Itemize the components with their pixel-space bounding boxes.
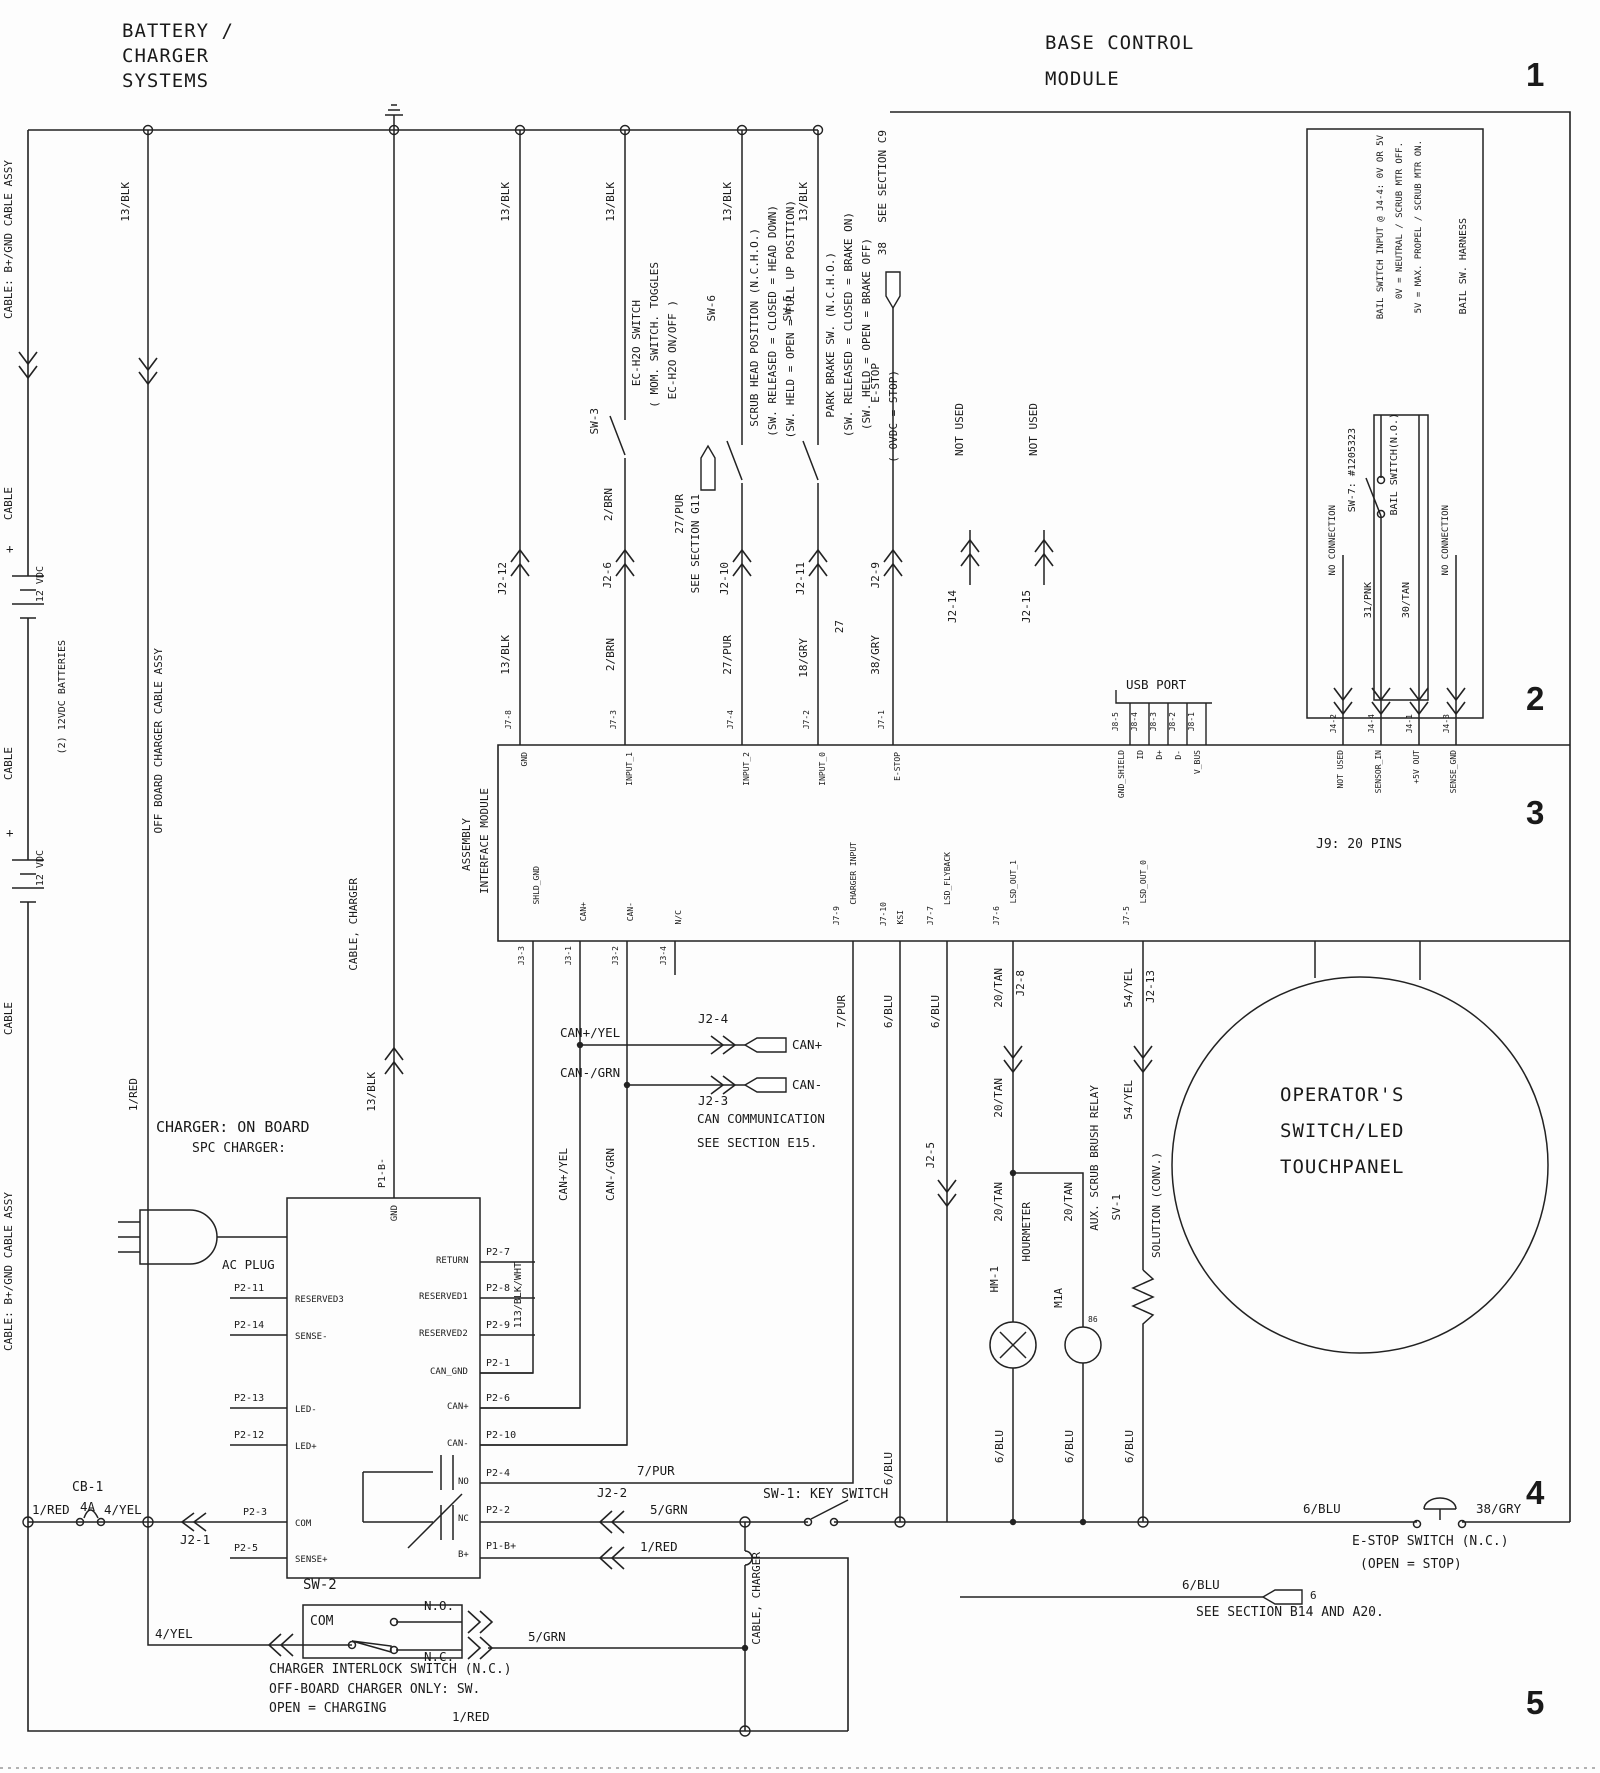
pin-name-ledp: LED+ <box>295 1443 317 1452</box>
pin-j3-1: J3-1 <box>565 946 573 965</box>
label-canp-yel: CAN+/YEL <box>560 1026 620 1039</box>
wire-13blk-c2: 13/BLK <box>605 182 617 222</box>
label-cable-assy-top: CABLE: B+/GND CABLE ASSY <box>3 160 15 319</box>
wire-18gry-low: 18/GRY <box>798 638 810 678</box>
bail-line1: BAIL SWITCH INPUT @ J4-4: 0V OR 5V <box>1377 135 1386 319</box>
pin-j7-7: J7-7 <box>927 906 935 925</box>
pin-j8-3: J8-3 <box>1150 712 1158 731</box>
label-20tan-2: 20/TAN <box>993 1078 1005 1118</box>
sw6-id: SW-6 <box>706 295 718 322</box>
pin-p2-2: P2-2 <box>486 1506 510 1517</box>
pin-name-gnd-chg: GND <box>391 1205 400 1221</box>
label-cable-1: CABLE <box>3 487 15 520</box>
pin-name-cgnd: CAN_GND <box>430 1368 468 1377</box>
label-20tan-1: 20/TAN <box>993 968 1005 1008</box>
label-4yel-row4: 4/YEL <box>104 1503 142 1516</box>
wire-13blk-c0: 13/BLK <box>120 182 132 222</box>
pin-name-gndshield: GND_SHIELD <box>1118 750 1126 798</box>
label-6blu-row4c: 6/BLU <box>1064 1430 1076 1463</box>
pin-j7-9: J7-9 <box>833 906 841 925</box>
sw2-com: COM <box>310 1615 333 1629</box>
pin-j4-2: J4-2 <box>1330 714 1338 733</box>
panel-line1: OPERATOR'S <box>1280 1086 1404 1106</box>
label-cable-2: CABLE <box>3 747 15 780</box>
sw6-line1: SCRUB HEAD POSITION (N.C.H.O.) <box>749 228 761 427</box>
bail-line2: 0V = NEUTRAL / SCRUB MTR OFF. <box>1396 142 1405 299</box>
label-cable-charger: CABLE, CHARGER <box>348 878 360 971</box>
row4-vertical-returns <box>745 1522 1263 1731</box>
wire-13blk-low: 13/BLK <box>500 635 512 675</box>
wire-30tan: 30/TAN <box>1402 582 1413 618</box>
flag-6-num: 6 <box>1310 1590 1317 1602</box>
pin-p2-5: P2-5 <box>234 1544 258 1555</box>
pin-p1bm: P1-B- <box>378 1158 389 1188</box>
pin-j8-5: J8-5 <box>1112 712 1120 731</box>
sw3-line3: EC-H2O ON/OFF ) <box>667 300 679 399</box>
sw3-line1: EC-H2O SWITCH <box>631 300 643 386</box>
pin-name-gnd: GND <box>521 752 529 766</box>
relay-coil-symbol <box>1065 1327 1101 1363</box>
estop-switch-symbol <box>1414 1498 1466 1528</box>
label-1red-bottom: 1/RED <box>452 1710 490 1723</box>
pin-name-no: NO <box>458 1478 469 1487</box>
conn-j2-13: J2-13 <box>1145 970 1157 1003</box>
label-hm1: HM-1 <box>989 1266 1001 1293</box>
sw2-id: SW-2 <box>303 1578 337 1593</box>
pin-p2-14: P2-14 <box>234 1321 264 1332</box>
conn-j2-11: J2-11 <box>795 562 807 595</box>
label-6blu-row4a: 6/BLU <box>883 1452 895 1485</box>
module-name-2: INTERFACE MODULE <box>479 788 491 894</box>
label-m1a: M1A <box>1053 1288 1065 1308</box>
conn-j2-15: J2-15 <box>1021 590 1033 623</box>
bail-noconn-2: NO CONNECTION <box>1442 505 1451 575</box>
sw5-line1: PARK BRAKE SW. (N.C.H.O.) <box>825 252 837 418</box>
label-batteries: (2) 12VDC BATTERIES <box>58 640 69 754</box>
bail-line3: 5V = MAX. PROPEL / SCRUB MTR ON. <box>1415 140 1424 313</box>
label-13blk-charger: 13/BLK <box>366 1072 378 1112</box>
wire-2brn-low: 2/BRN <box>605 638 617 671</box>
sw6-line2: (SW. RELEASED = CLOSED = HEAD DOWN) <box>767 205 779 437</box>
label-54yel-2: 54/YEL <box>1123 1080 1135 1120</box>
label-sv1: SV-1 <box>1111 1194 1123 1221</box>
pin-p2-9: P2-9 <box>486 1321 510 1332</box>
row-marker-4: 4 <box>1526 1476 1544 1511</box>
title-bcm-2: MODULE <box>1045 70 1120 90</box>
pin-p2-11: P2-11 <box>234 1284 264 1295</box>
flag-can-minus: CAN- <box>792 1078 822 1091</box>
pin-j7-1: J7-1 <box>878 710 886 729</box>
conn-j2-4: J2-4 <box>698 1012 728 1025</box>
label-20tan-4: 20/TAN <box>1063 1182 1075 1222</box>
pin-j4-1: J4-1 <box>1406 714 1414 733</box>
sw2-desc2: OFF-BOARD CHARGER ONLY: SW. <box>269 1683 480 1697</box>
label-ac-plug: AC PLUG <box>222 1258 275 1271</box>
pin-name-nc-chg: NC <box>458 1515 469 1524</box>
hourmeter-symbol <box>990 1322 1036 1368</box>
pin-name-sm: SENSE- <box>295 1333 328 1342</box>
see-section-b14: SEE SECTION B14 AND A20. <box>1196 1606 1384 1620</box>
label-6blu-row4d: 6/BLU <box>1124 1430 1136 1463</box>
pin-name-notused: NOT USED <box>1337 750 1345 789</box>
ground-symbol <box>385 105 403 130</box>
title-bcm-1: BASE CONTROL <box>1045 34 1194 54</box>
sw3-line2: ( MOM. SWITCH. TOGGLES <box>649 262 661 408</box>
row-marker-3: 3 <box>1526 796 1544 831</box>
pin-j8-1: J8-1 <box>1188 712 1196 731</box>
label-7pur-h: 7/PUR <box>637 1464 675 1477</box>
pin-name-bp: B+ <box>458 1551 469 1560</box>
conn-j2-12: J2-12 <box>497 562 509 595</box>
pin-name-canp-chg: CAN+ <box>447 1403 469 1412</box>
wire-13blk-c4: 13/BLK <box>798 182 810 222</box>
pin-name-out0: LSD_OUT_0 <box>1140 860 1148 903</box>
not-used-1: NOT USED <box>954 403 966 456</box>
label-6blu-fly: 6/BLU <box>930 995 942 1028</box>
column-wires <box>148 130 1044 1645</box>
conn-j2-9: J2-9 <box>870 562 882 589</box>
label-54yel-1: 54/YEL <box>1123 968 1135 1008</box>
pin-name-flyback: LSD_FLYBACK <box>944 852 952 905</box>
pin-name-vbus: V_BUS <box>1194 750 1202 774</box>
wire-13blk-c3: 13/BLK <box>722 182 734 222</box>
label-12vdc-2: 12 VDC <box>36 850 47 886</box>
pin-name-res3: RESERVED3 <box>295 1296 344 1305</box>
estop-col-state: ( 0VDC = STOP) <box>888 370 900 463</box>
pin-p2-7: P2-7 <box>486 1248 510 1259</box>
conn-j2-6: J2-6 <box>602 562 614 589</box>
pin-p2-1: P2-1 <box>486 1359 510 1370</box>
label-cb1: CB-1 <box>72 1481 103 1495</box>
battery2-plus: + <box>6 826 14 839</box>
pin-name-ret: RETURN <box>436 1257 469 1266</box>
sw2-desc1: CHARGER INTERLOCK SWITCH (N.C.) <box>269 1663 512 1677</box>
pin-name-ksi: KSI <box>897 910 905 924</box>
not-used-2: NOT USED <box>1028 403 1040 456</box>
pin-name-ledm: LED- <box>295 1406 317 1415</box>
conn-j2-2: J2-2 <box>597 1486 627 1499</box>
label-solution: SOLUTION (CONV.) <box>1151 1152 1163 1258</box>
title-battery-1: BATTERY / <box>122 22 234 42</box>
label-cable-assy-bottom: CABLE: B+/GND CABLE ASSY <box>3 1192 15 1351</box>
junction-dots <box>577 1042 1086 1651</box>
pin-j7-8: J7-8 <box>505 710 513 729</box>
pin-p1bp: P1-B+ <box>486 1542 516 1553</box>
pin-name-id: ID <box>1137 750 1145 760</box>
pin-p2-10: P2-10 <box>486 1431 516 1442</box>
panel-line3: TOUCHPANEL <box>1280 1158 1404 1178</box>
title-battery-3: SYSTEMS <box>122 72 209 92</box>
schematic-lines <box>0 0 1600 1773</box>
pin-name-com: COM <box>295 1520 311 1529</box>
wire-13blk-c1: 13/BLK <box>500 182 512 222</box>
pin-p2-8: P2-8 <box>486 1284 510 1295</box>
estop-main-state: (OPEN = STOP) <box>1360 1558 1462 1572</box>
pin-name-canp: CAN+ <box>580 902 588 921</box>
pin-name-res1: RESERVED1 <box>419 1293 468 1302</box>
pin-j7-6: J7-6 <box>993 906 1001 925</box>
sw7-name: BAIL SWITCH(N.O.) <box>1390 413 1401 515</box>
conn-j2-1: J2-1 <box>180 1533 210 1546</box>
pin-name-nc: N/C <box>675 910 683 924</box>
ac-plug-symbol <box>118 1210 287 1264</box>
pin-j7-2: J7-2 <box>803 710 811 729</box>
pin-name-cann: CAN- <box>627 902 635 921</box>
label-5grn-row4: 5/GRN <box>650 1503 688 1516</box>
sw2-desc3: OPEN = CHARGING <box>269 1702 386 1716</box>
pin-j7-10: J7-10 <box>880 902 888 926</box>
panel-line2: SWITCH/LED <box>1280 1122 1404 1142</box>
label-cable-3: CABLE <box>3 1002 15 1035</box>
label-113blkwht: 113/BLK/WHT <box>514 1262 525 1328</box>
module-name-1: ASSEMBLY <box>461 818 473 871</box>
label-cb1-amps: 4A <box>80 1500 95 1513</box>
label-5grn-sw2: 5/GRN <box>528 1630 566 1643</box>
sw2-interlock-box <box>285 1605 745 1658</box>
label-hourmeter: HOURMETER <box>1021 1202 1033 1262</box>
pin-name-dminus: D- <box>1175 750 1183 760</box>
pin-j7-4: J7-4 <box>727 710 735 729</box>
pin-j3-3: J3-3 <box>518 946 526 965</box>
pin-name-sensorin: SENSOR_IN <box>1375 750 1383 793</box>
pin-j7-3: J7-3 <box>610 710 618 729</box>
pin-name-estop: E-STOP <box>894 752 902 781</box>
pin-p2-3: P2-3 <box>243 1508 267 1519</box>
label-38gry-estop: 38/GRY <box>1476 1502 1521 1515</box>
label-6blu-row4b: 6/BLU <box>994 1430 1006 1463</box>
flag-symbols <box>701 272 1302 1604</box>
wire-2brn-upper: 2/BRN <box>603 488 615 521</box>
flag-g11-text: SEE SECTION G11 <box>690 494 702 593</box>
row-marker-5: 5 <box>1526 1686 1544 1721</box>
conn-j2-3: J2-3 <box>698 1094 728 1107</box>
pin-name-cann-chg: CAN- <box>447 1440 469 1449</box>
charger-subtitle: SPC CHARGER: <box>192 1142 286 1156</box>
pin-j4-4: J4-4 <box>1368 714 1376 733</box>
pin-name-5vout: +5V OUT <box>1413 750 1421 784</box>
label-6blu-estop: 6/BLU <box>1303 1502 1341 1515</box>
label-cable-charger-bottom: CABLE, CHARGER <box>751 1552 763 1645</box>
pin-p2-4: P2-4 <box>486 1469 510 1480</box>
sw7-id: SW-7: #1205323 <box>1348 428 1359 512</box>
sw3-id: SW-3 <box>589 408 601 435</box>
can-note-2: SEE SECTION E15. <box>697 1136 817 1149</box>
label-pin86: 86 <box>1088 1316 1098 1324</box>
usb-title: USB PORT <box>1126 678 1186 691</box>
label-cann-grn-v: CAN-/GRN <box>605 1148 617 1201</box>
wire-31pnk: 31/PNK <box>1364 582 1375 618</box>
wire-27pur-low: 27/PUR <box>722 635 734 675</box>
sw2-no: N.O. <box>424 1599 454 1612</box>
conn-j2-10: J2-10 <box>719 562 731 595</box>
label-1red-mid: 1/RED <box>640 1540 678 1553</box>
label-6blu-flag: 6/BLU <box>1182 1578 1220 1591</box>
label-12vdc-1: 12 VDC <box>36 566 47 602</box>
label-canp-yel-v: CAN+/YEL <box>558 1148 570 1201</box>
label-sw1: SW-1: KEY SWITCH <box>763 1488 888 1502</box>
charger-box <box>230 1198 627 1578</box>
wire-27: 27 <box>834 620 846 633</box>
pin-name-sensegnd: SENSE_GND <box>1450 750 1458 793</box>
pin-name-shld: SHLD_GND <box>533 866 541 905</box>
battery1-plus: + <box>6 542 14 555</box>
charger-title: CHARGER: ON BOARD <box>156 1120 310 1136</box>
label-4yel-sw2: 4/YEL <box>155 1627 193 1640</box>
pin-p2-12: P2-12 <box>234 1431 264 1442</box>
estop-col-name: E-STOP <box>870 363 882 403</box>
estop-main-name: E-STOP SWITCH (N.C.) <box>1352 1535 1509 1549</box>
label-aux-relay: AUX. SCRUB BRUSH RELAY <box>1089 1085 1101 1231</box>
pin-name-input2: INPUT_2 <box>743 752 751 786</box>
label-j9: J9: 20 PINS <box>1316 838 1402 852</box>
sw5-line2: (SW. RELEASED = CLOSED = BRAKE ON) <box>843 212 855 437</box>
pin-name-out1: LSD_OUT_1 <box>1010 860 1018 903</box>
pin-name-charger-input: CHARGER INPUT <box>850 842 858 905</box>
conn-j2-5: J2-5 <box>925 1142 937 1169</box>
flag-c9-num: 38 <box>877 242 889 255</box>
flag-g11-wire: 27/PUR <box>674 494 686 534</box>
title-battery-2: CHARGER <box>122 47 209 67</box>
conn-j2-14: J2-14 <box>947 590 959 623</box>
pin-j8-4: J8-4 <box>1131 712 1139 731</box>
pin-j3-4: J3-4 <box>660 946 668 965</box>
flag-c9-text: SEE SECTION C9 <box>877 130 889 223</box>
pin-p2-13: P2-13 <box>234 1394 264 1405</box>
conn-j2-8: J2-8 <box>1015 970 1027 997</box>
label-20tan-3: 20/TAN <box>993 1182 1005 1222</box>
pin-j3-2: J3-2 <box>612 946 620 965</box>
label-1red-vertical: 1/RED <box>128 1078 140 1111</box>
pin-j8-2: J8-2 <box>1169 712 1177 731</box>
sw5-id: SW-5 <box>782 295 794 322</box>
label-6blu-ksi: 6/BLU <box>883 995 895 1028</box>
junction-circles <box>23 126 1148 1737</box>
pin-name-res2: RESERVED2 <box>419 1330 468 1339</box>
pin-name-input1: INPUT_1 <box>626 752 634 786</box>
row-marker-1: 1 <box>1526 58 1544 93</box>
can-note-1: CAN COMMUNICATION <box>697 1112 825 1125</box>
label-cann-grn: CAN-/GRN <box>560 1066 620 1079</box>
label-offboard-cable: OFF BOARD CHARGER CABLE ASSY <box>153 648 165 833</box>
pin-p2-6: P2-6 <box>486 1394 510 1405</box>
row-marker-2: 2 <box>1526 682 1544 717</box>
label-1red-row4: 1/RED <box>32 1503 70 1516</box>
wire-38gry-low: 38/GRY <box>870 635 882 675</box>
touchpanel-outline <box>1172 941 1548 1353</box>
wiring-diagram: BATTERY / CHARGER SYSTEMS BASE CONTROL M… <box>0 0 1600 1773</box>
pin-j7-5: J7-5 <box>1123 906 1131 925</box>
bail-harness-name: BAIL SW. HARNESS <box>1459 218 1470 314</box>
pin-name-sp: SENSE+ <box>295 1556 328 1565</box>
pin-j4-3: J4-3 <box>1443 714 1451 733</box>
pin-name-dplus: D+ <box>1156 750 1164 760</box>
pin-name-input0: INPUT_0 <box>819 752 827 786</box>
bail-noconn-1: NO CONNECTION <box>1329 505 1338 575</box>
flag-can-plus: CAN+ <box>792 1038 822 1051</box>
label-7pur-v: 7/PUR <box>836 995 848 1028</box>
